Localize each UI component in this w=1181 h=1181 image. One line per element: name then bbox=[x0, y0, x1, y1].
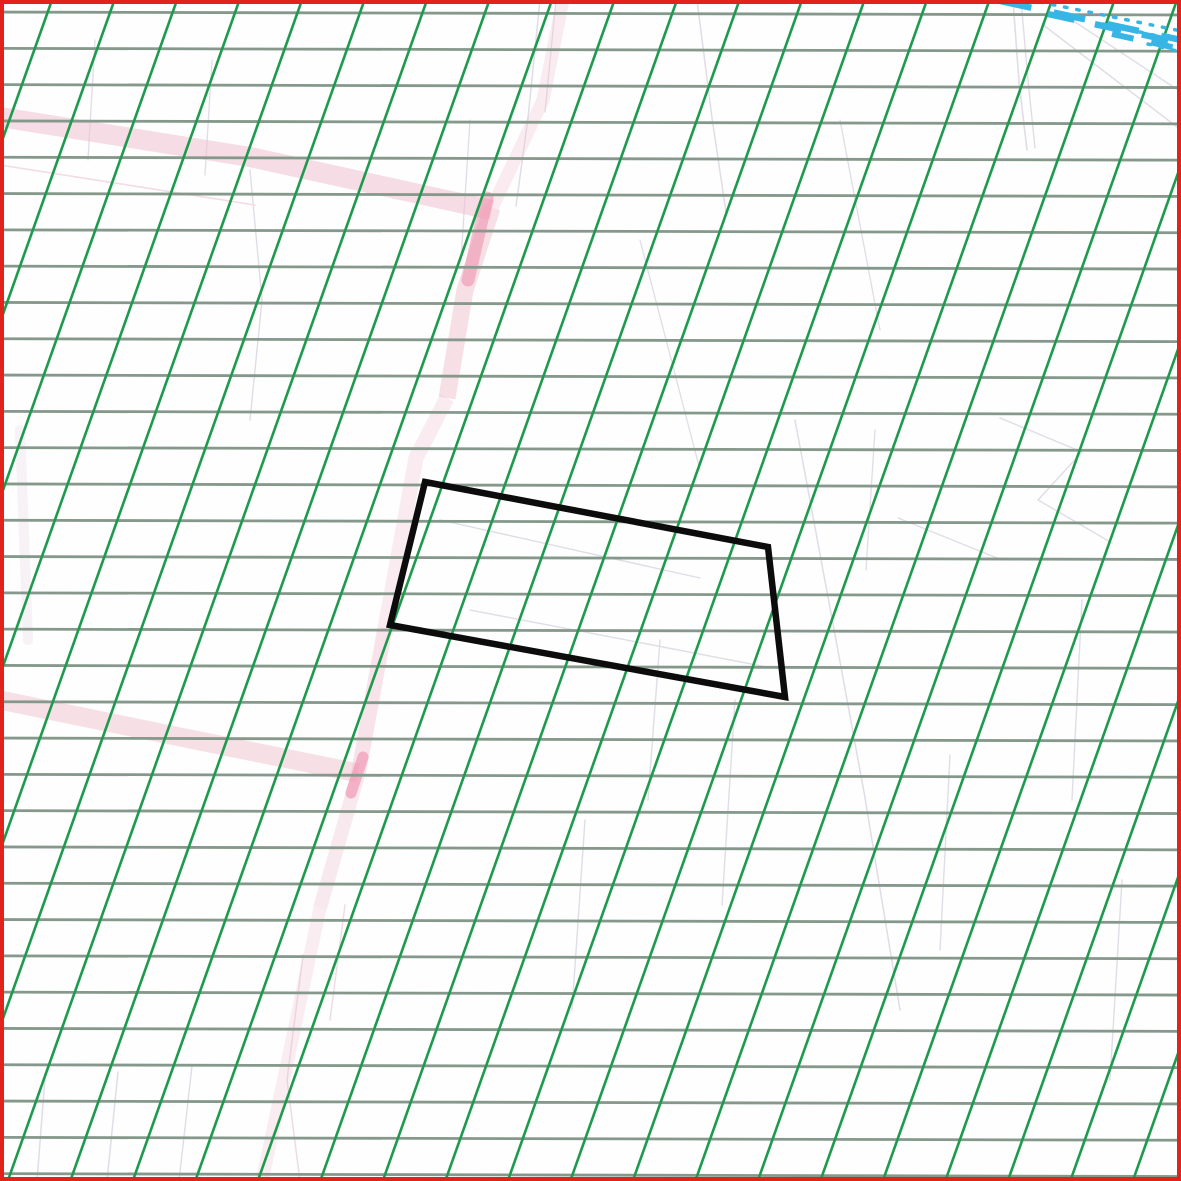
map-canvas[interactable] bbox=[0, 0, 1181, 1181]
pink-roads-group bbox=[0, 0, 563, 1181]
grid-diagonal-lines-group bbox=[0, 0, 1181, 1181]
map-frame-group bbox=[2, 2, 1179, 1179]
water-boundary-group bbox=[1000, 1, 1181, 52]
map-svg bbox=[0, 0, 1181, 1181]
parcel-outline-group[interactable] bbox=[390, 482, 785, 697]
